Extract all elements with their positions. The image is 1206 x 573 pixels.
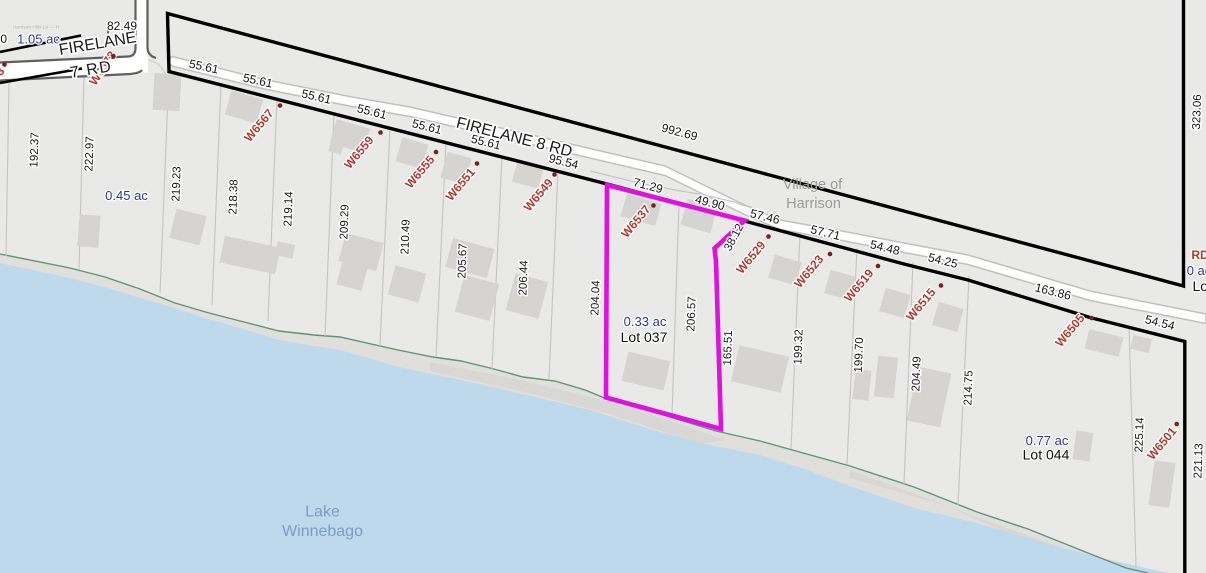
svg-text:Village of: Village of <box>783 177 843 193</box>
svg-text:0 ac: 0 ac <box>1187 263 1206 278</box>
svg-text:210.49: 210.49 <box>399 219 412 255</box>
svg-text:199.70: 199.70 <box>853 337 866 373</box>
svg-text:192.37: 192.37 <box>28 132 41 168</box>
svg-text:206.57: 206.57 <box>685 296 698 332</box>
svg-text:Harrison: Harrison <box>786 196 841 212</box>
svg-text:218.38: 218.38 <box>227 179 240 215</box>
svg-text:Harrison Hills Ln — H: Harrison Hills Ln — H <box>13 25 60 31</box>
svg-text:323.06: 323.06 <box>1191 94 1204 130</box>
svg-text:Lake: Lake <box>305 504 340 521</box>
svg-text:206.44: 206.44 <box>517 260 530 296</box>
svg-text:0.33 ac: 0.33 ac <box>624 314 667 329</box>
svg-text:214.75: 214.75 <box>962 370 975 406</box>
svg-text:219.14: 219.14 <box>282 191 295 227</box>
svg-text:219.23: 219.23 <box>170 166 183 202</box>
svg-text:222.97: 222.97 <box>83 136 96 172</box>
svg-text:RD: RD <box>1191 248 1206 262</box>
svg-text:221.13: 221.13 <box>1192 443 1205 479</box>
svg-text:209.29: 209.29 <box>338 204 351 240</box>
svg-text:Lot 044: Lot 044 <box>1023 447 1070 463</box>
svg-text:0.45 ac: 0.45 ac <box>105 188 148 203</box>
svg-text:Winnebago: Winnebago <box>282 523 363 540</box>
svg-text:205.67: 205.67 <box>456 243 469 279</box>
svg-text:204.04: 204.04 <box>589 280 602 316</box>
svg-text:.0: .0 <box>0 32 7 46</box>
svg-text:Lot 037: Lot 037 <box>621 329 668 345</box>
svg-text:204.49: 204.49 <box>910 356 923 392</box>
svg-text:225.14: 225.14 <box>1133 417 1146 453</box>
svg-text:1.05 ac: 1.05 ac <box>17 32 60 47</box>
svg-text:Lot 0: Lot 0 <box>1192 278 1206 294</box>
svg-text:165.51: 165.51 <box>722 330 735 366</box>
svg-text:199.32: 199.32 <box>792 329 805 365</box>
